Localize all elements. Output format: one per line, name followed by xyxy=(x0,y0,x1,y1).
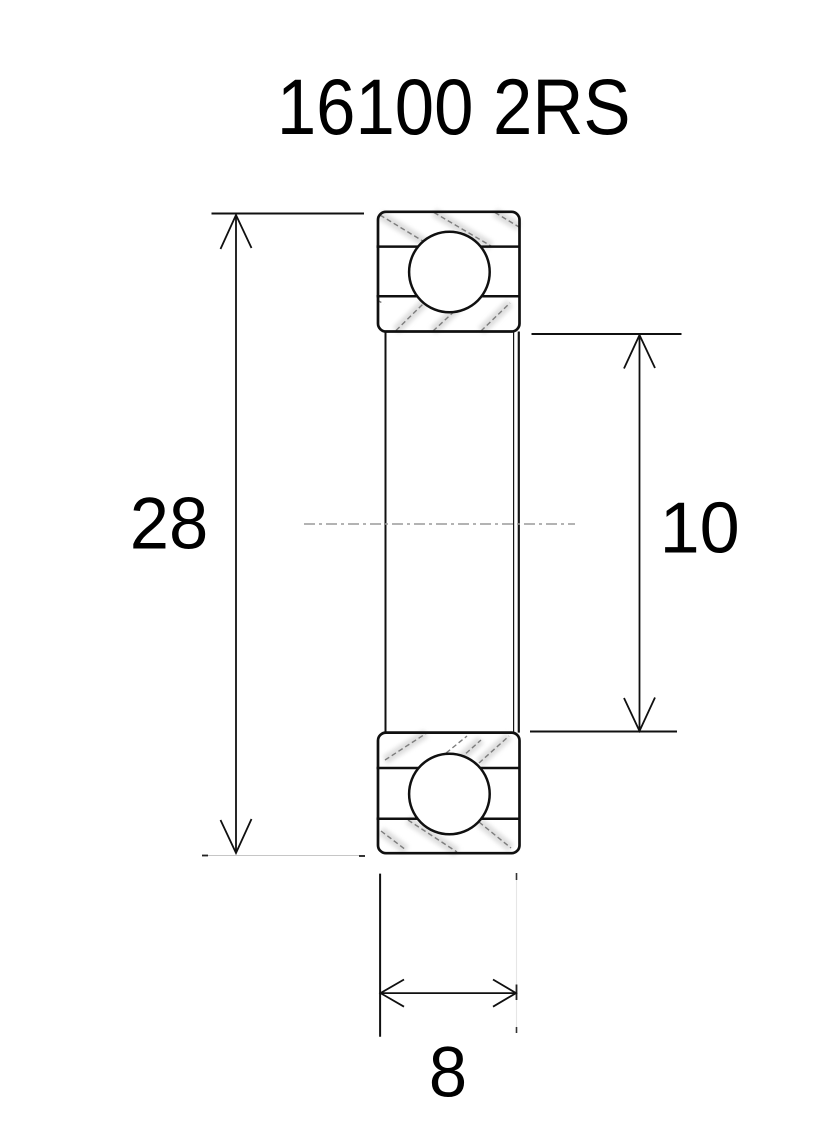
svg-text:16100 2RS: 16100 2RS xyxy=(277,62,631,151)
svg-text:10: 10 xyxy=(660,489,740,569)
svg-text:28: 28 xyxy=(130,483,208,565)
svg-text:8: 8 xyxy=(429,1032,467,1112)
